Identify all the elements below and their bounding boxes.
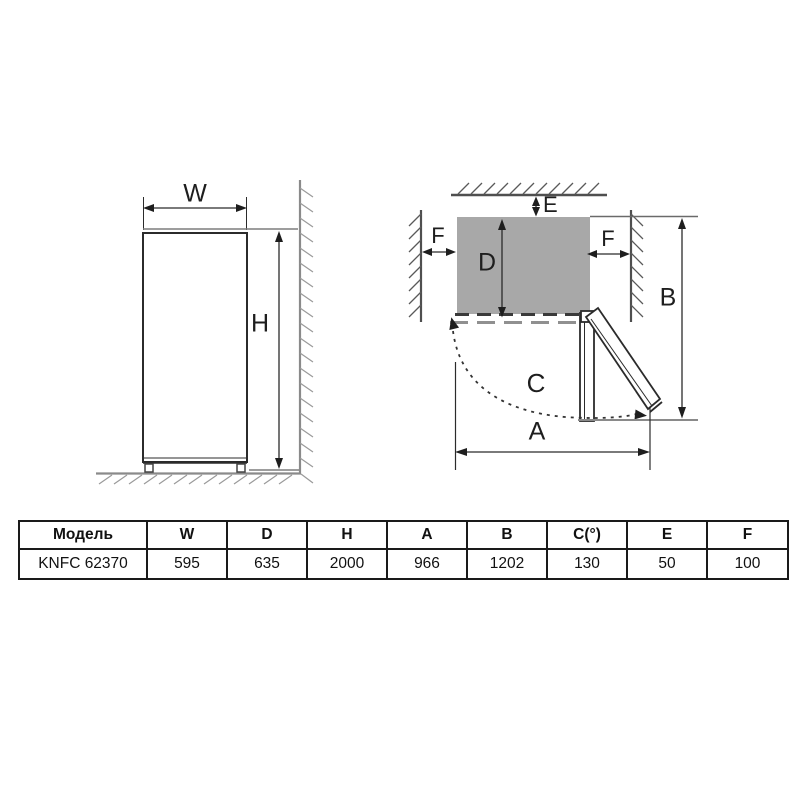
table-header-c: C(°)	[547, 521, 627, 549]
floor-hatching	[99, 475, 292, 484]
label-e: E	[543, 192, 558, 217]
table-row: KNFC 62370 595 635 2000 966 1202 130 50 …	[19, 549, 788, 579]
cell-e: 50	[627, 549, 707, 579]
door-swing-arc: C	[446, 316, 647, 421]
wall-hatching-top	[458, 183, 599, 194]
label-a: A	[529, 418, 546, 446]
table-header-model: Модель	[19, 521, 147, 549]
arrowhead	[275, 231, 283, 242]
cell-d: 635	[227, 549, 307, 579]
arrowhead	[236, 204, 247, 212]
arrowhead	[275, 458, 283, 469]
cell-h: 2000	[307, 549, 387, 579]
table-header-a: A	[387, 521, 467, 549]
arrowhead	[532, 207, 540, 217]
label-c: C	[527, 368, 546, 398]
open-door	[580, 308, 662, 421]
label-b: B	[660, 284, 677, 312]
label-f-left: F	[431, 223, 444, 248]
fridge-foot-right	[237, 464, 245, 472]
label-d: D	[478, 249, 496, 277]
table-header-b: B	[467, 521, 547, 549]
table-header-w: W	[147, 521, 227, 549]
wall-hatching-left	[409, 214, 421, 317]
table-header-h: H	[307, 521, 387, 549]
cell-model: KNFC 62370	[19, 549, 147, 579]
arrowhead	[678, 407, 686, 419]
table-header-f: F	[707, 521, 788, 549]
arrowhead	[446, 248, 456, 256]
arrowhead	[620, 250, 630, 258]
cell-b: 1202	[467, 549, 547, 579]
wall-hatching-right	[300, 188, 313, 483]
top-view: E F D F	[409, 183, 698, 470]
cell-f: 100	[707, 549, 788, 579]
label-f-right: F	[601, 226, 614, 251]
cell-a: 966	[387, 549, 467, 579]
page: W H	[0, 0, 800, 800]
installation-diagram: W H	[0, 0, 800, 512]
arrowhead	[532, 197, 540, 207]
arrowhead	[455, 448, 467, 456]
label-h: H	[251, 310, 269, 338]
dimensions-table: Модель W D H A B C(°) E F KNFC 62370 595…	[18, 520, 789, 580]
label-w: W	[183, 180, 207, 208]
table-header-row: Модель W D H A B C(°) E F	[19, 521, 788, 549]
f-left-dimension: F	[422, 223, 456, 256]
arrowhead	[678, 218, 686, 229]
fridge-front-body	[143, 233, 247, 462]
w-dimension: W	[143, 180, 247, 230]
fridge-foot-left	[145, 464, 153, 472]
table-header-d: D	[227, 521, 307, 549]
table-header-e: E	[627, 521, 707, 549]
cell-w: 595	[147, 549, 227, 579]
f-right-dimension: F	[587, 226, 630, 258]
arrowhead	[638, 448, 650, 456]
arrowhead	[143, 204, 154, 212]
cell-c: 130	[547, 549, 627, 579]
front-view: W H	[96, 180, 313, 484]
wall-hatching-side-right	[631, 214, 643, 317]
fridge-top-view-body	[457, 217, 590, 314]
arrowhead	[422, 248, 432, 256]
